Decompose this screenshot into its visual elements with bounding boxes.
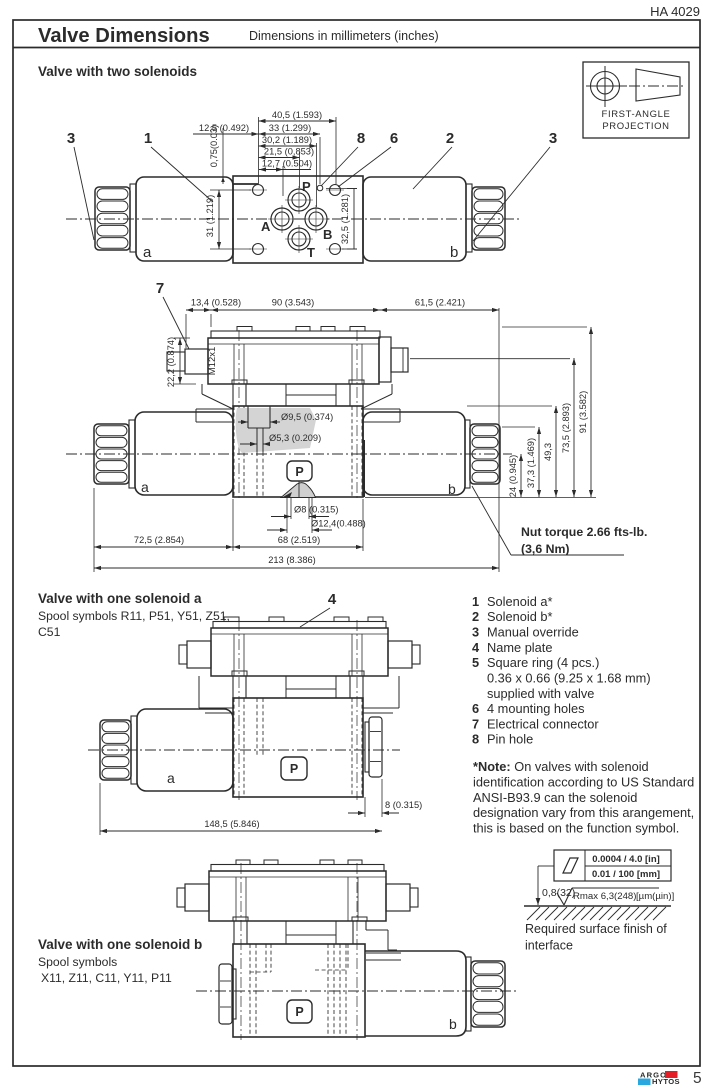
svg-text:49,3: 49,3 <box>543 443 553 461</box>
svg-text:3: 3 <box>67 130 75 147</box>
svg-text:Spool symbols: Spool symbols <box>38 955 117 969</box>
svg-text:Ø5,3 (0.209): Ø5,3 (0.209) <box>269 433 321 443</box>
svg-text:12,7 (0.504): 12,7 (0.504) <box>262 159 312 169</box>
svg-text:a: a <box>143 244 152 261</box>
svg-text:148,5 (5.846): 148,5 (5.846) <box>204 819 259 829</box>
svg-text:Manual override: Manual override <box>487 625 579 640</box>
svg-text:61,5 (2.421): 61,5 (2.421) <box>415 298 465 308</box>
svg-text:Valve with one solenoid a: Valve with one solenoid a <box>38 591 202 606</box>
svg-text:30,2 (1.189): 30,2 (1.189) <box>262 135 312 145</box>
svg-text:Name plate: Name plate <box>487 640 552 655</box>
svg-text:P: P <box>290 762 298 776</box>
svg-text:3: 3 <box>472 625 479 640</box>
svg-text:Valve with two solenoids: Valve with two solenoids <box>38 64 197 79</box>
svg-text:5: 5 <box>472 655 479 670</box>
svg-text:4: 4 <box>328 591 337 608</box>
svg-text:a: a <box>167 770 175 786</box>
svg-text:72,5 (2.854): 72,5 (2.854) <box>134 535 184 545</box>
svg-text:Solenoid b*: Solenoid b* <box>487 609 552 624</box>
svg-text:8 (0.315): 8 (0.315) <box>385 800 422 810</box>
svg-text:4 mounting holes: 4 mounting holes <box>487 701 584 716</box>
svg-text:73,5 (2.893): 73,5 (2.893) <box>561 403 571 453</box>
svg-text:21,5 (0,853): 21,5 (0,853) <box>264 147 314 157</box>
svg-text:Dimensions in millimeters (inc: Dimensions in millimeters (inches) <box>249 29 439 43</box>
svg-text:Ø9,5 (0.374): Ø9,5 (0.374) <box>281 412 333 422</box>
svg-text:0.01 / 100 [mm]: 0.01 / 100 [mm] <box>592 869 660 880</box>
svg-text:2: 2 <box>472 609 479 624</box>
svg-text:0,8(32): 0,8(32) <box>542 887 575 899</box>
svg-text:1: 1 <box>144 130 152 147</box>
svg-text:68 (2.519): 68 (2.519) <box>278 535 320 545</box>
svg-text:2: 2 <box>446 130 454 147</box>
svg-text:designation vary from this ara: designation vary from this arangement, <box>473 805 694 820</box>
svg-text:T: T <box>307 245 315 260</box>
svg-text:b: b <box>449 1016 457 1032</box>
svg-text:33 (1.299): 33 (1.299) <box>269 123 311 133</box>
svg-text:b: b <box>450 244 458 261</box>
svg-text:identification according to US: identification according to US Standard <box>473 775 694 790</box>
svg-text:0.36 x 0.66 (9.25 x 1.68 mm): 0.36 x 0.66 (9.25 x 1.68 mm) <box>487 671 651 686</box>
svg-text:90 (3.543): 90 (3.543) <box>272 298 314 308</box>
svg-text:91 (3.582): 91 (3.582) <box>578 391 588 433</box>
svg-text:13,4 (0.528): 13,4 (0.528) <box>191 298 241 308</box>
svg-text:213 (8.386): 213 (8.386) <box>268 555 316 565</box>
svg-text:0.0004 / 4.0 [in]: 0.0004 / 4.0 [in] <box>592 854 660 865</box>
svg-text:P: P <box>295 465 303 479</box>
svg-text:Solenoid a*: Solenoid a* <box>487 594 552 609</box>
svg-text:32,5 (1.281): 32,5 (1.281) <box>340 194 350 244</box>
svg-text:[µm(µin)]: [µm(µin)] <box>636 891 674 902</box>
svg-text:Valve Dimensions: Valve Dimensions <box>38 25 210 47</box>
svg-text:3: 3 <box>549 130 557 147</box>
svg-text:8: 8 <box>357 130 365 147</box>
svg-text:PROJECTION: PROJECTION <box>602 121 669 132</box>
svg-text:Ø8 (0.315): Ø8 (0.315) <box>294 505 338 515</box>
svg-text:Pin hole: Pin hole <box>487 732 533 747</box>
svg-text:Ø12,4(0.488): Ø12,4(0.488) <box>311 519 366 529</box>
svg-text:C51: C51 <box>38 625 61 639</box>
svg-text:B: B <box>323 227 332 242</box>
svg-text:P: P <box>302 179 311 194</box>
svg-text:7: 7 <box>156 280 164 297</box>
svg-text:Square ring (4 pcs.): Square ring (4 pcs.) <box>487 655 599 670</box>
svg-text:8: 8 <box>472 732 479 747</box>
svg-text:22,2 (0.874): 22,2 (0.874) <box>166 337 176 387</box>
svg-text:X11, Z11, C11, Y11, P11: X11, Z11, C11, Y11, P11 <box>41 971 172 985</box>
svg-text:(3,6 Nm): (3,6 Nm) <box>521 542 570 556</box>
svg-text:31 (1.219): 31 (1.219) <box>205 195 215 237</box>
svg-text:Electrical connector: Electrical connector <box>487 717 599 732</box>
svg-text:Valve with one solenoid b: Valve with one solenoid b <box>38 937 202 952</box>
svg-text:37,3 (1.469): 37,3 (1.469) <box>526 438 536 488</box>
svg-text:this is based on the function: this is based on the function symbol. <box>473 821 679 836</box>
svg-text:1: 1 <box>472 594 479 609</box>
svg-text:HA 4029: HA 4029 <box>650 4 700 19</box>
svg-text:*Note: On valves with solenoid: *Note: On valves with solenoid <box>473 759 649 774</box>
svg-text:24 (0.945): 24 (0.945) <box>508 455 518 497</box>
svg-text:interface: interface <box>525 939 573 953</box>
svg-text:5: 5 <box>693 1070 702 1087</box>
svg-text:0,75(0.03): 0,75(0.03) <box>209 125 219 167</box>
svg-text:b: b <box>448 481 456 497</box>
svg-text:Nut torque 2.66 fts-lb.: Nut torque 2.66 fts-lb. <box>521 525 647 539</box>
svg-text:Rmax 6,3(248): Rmax 6,3(248) <box>573 891 636 902</box>
svg-text:6: 6 <box>472 701 479 716</box>
svg-text:a: a <box>141 479 149 495</box>
svg-text:ANSI-B93.9 can the solenoid: ANSI-B93.9 can the solenoid <box>473 790 637 805</box>
svg-text:Spool symbols R11, P51, Y51, Z: Spool symbols R11, P51, Y51, Z51, <box>38 609 230 623</box>
svg-text:supplied with valve: supplied with valve <box>487 686 594 701</box>
svg-text:6: 6 <box>390 130 398 147</box>
svg-text:Required surface finish of: Required surface finish of <box>525 922 667 936</box>
svg-text:FIRST-ANGLE: FIRST-ANGLE <box>602 109 671 120</box>
svg-text:P: P <box>295 1005 303 1019</box>
svg-text:12,5 (0.492): 12,5 (0.492) <box>199 123 249 133</box>
svg-text:7: 7 <box>472 717 479 732</box>
svg-text:40,5 (1.593): 40,5 (1.593) <box>272 110 322 120</box>
svg-text:A: A <box>261 219 271 234</box>
svg-text:M12x1: M12x1 <box>207 347 218 376</box>
svg-text:HYTOS: HYTOS <box>652 1077 680 1086</box>
svg-text:4: 4 <box>472 640 480 655</box>
